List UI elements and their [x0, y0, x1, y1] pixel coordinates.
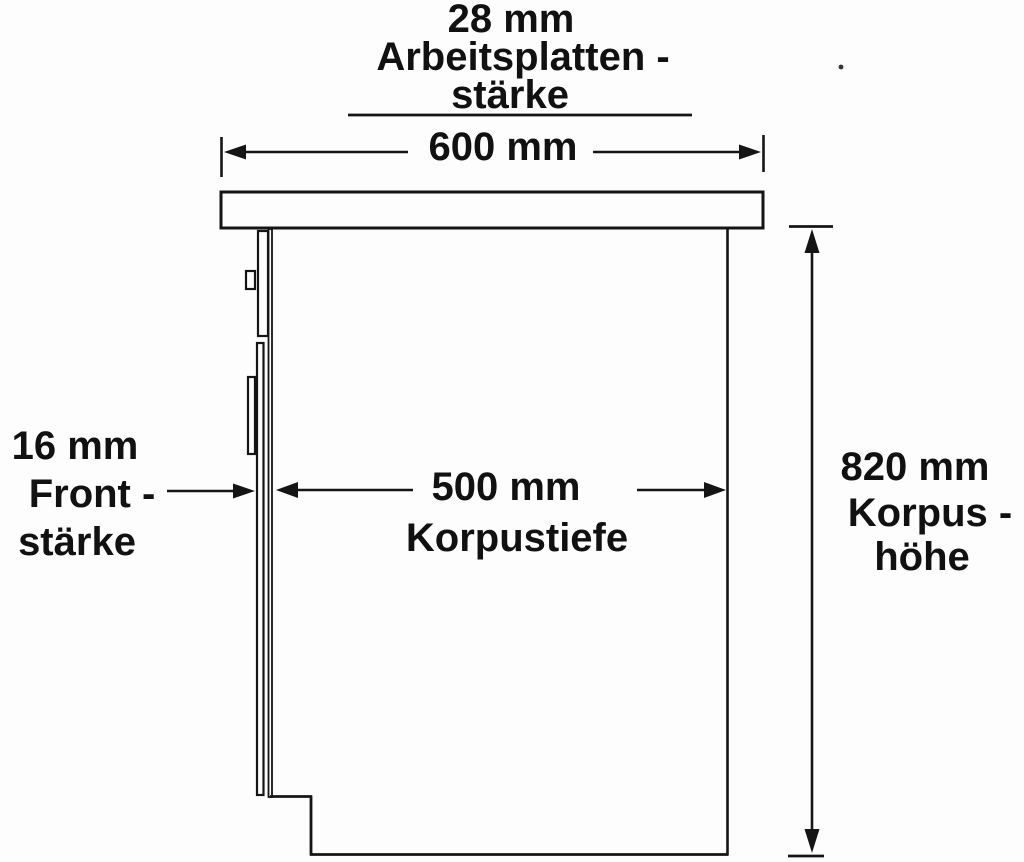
depth-dim-left-arrowhead [276, 482, 298, 498]
drawer-front-outline [258, 231, 268, 336]
front-thickness-label-line2: stärke [18, 522, 136, 562]
cabinet-width-value: 600 mm [429, 127, 578, 167]
body-height-value: 820 mm [841, 447, 990, 487]
body-depth-label: Korpustiefe [406, 518, 628, 558]
front-thickness-label-line1: Front - [29, 474, 156, 514]
stray-dot [839, 65, 844, 70]
body-height-label-line2: höhe [874, 537, 970, 577]
worktop-thickness-value: 28 mm [448, 0, 575, 39]
door-handle [248, 377, 255, 454]
height-dim-up-arrowhead [805, 229, 820, 253]
worktop-thickness-label-line1: Arbeitsplatten - [376, 37, 669, 77]
body-depth-value: 500 mm [432, 467, 581, 507]
width-dim-left-arrowhead [224, 145, 246, 160]
worktop-outline [221, 192, 763, 228]
cabinet-dimension-diagram: 28 mm Arbeitsplatten - stärke 600 mm 16 … [0, 0, 1024, 862]
front-thickness-arrowhead [233, 484, 255, 499]
drawer-handle [246, 271, 255, 289]
worktop-thickness-label-line2: stärke [451, 75, 569, 115]
depth-dim-right-arrowhead [704, 482, 726, 498]
width-dim-right-arrowhead [739, 145, 761, 160]
door-front-outline [257, 343, 264, 795]
body-height-label-line1: Korpus - [848, 493, 1012, 533]
height-dim-down-arrowhead [805, 829, 820, 853]
front-thickness-value: 16 mm [12, 426, 139, 466]
